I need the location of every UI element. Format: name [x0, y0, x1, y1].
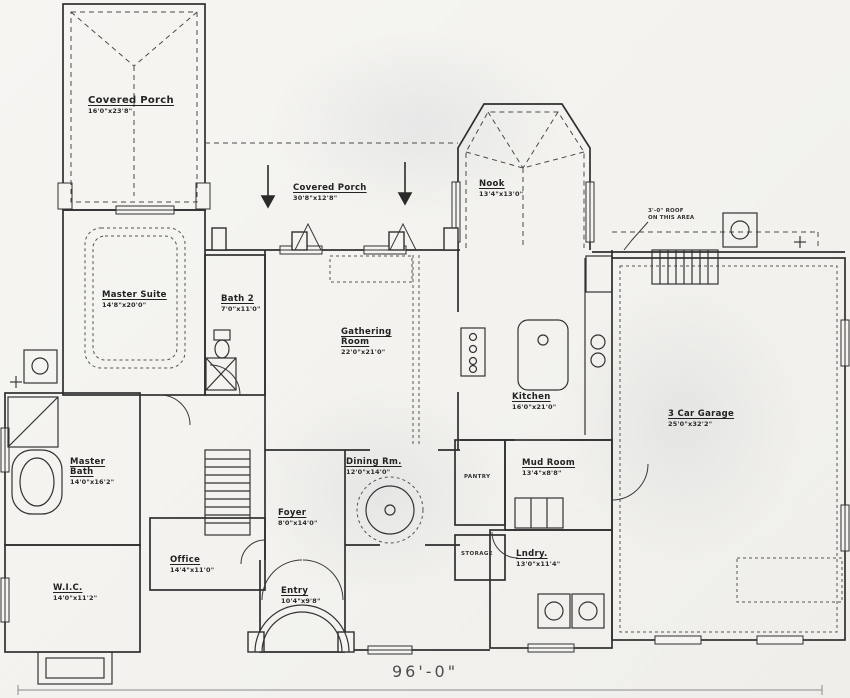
- exterior-steps: [652, 250, 718, 284]
- room-dims: 13'0"x11'4": [516, 561, 560, 568]
- room-dims: 30'8"x12'8": [293, 195, 367, 202]
- room-dims: 8'0"x14'0": [278, 520, 318, 527]
- room-label-garage: 3 Car Garage 25'0"x32'2": [668, 410, 734, 429]
- room-label-wic: W.I.C. 14'0"x11'2": [53, 584, 97, 603]
- room-name: Covered Porch: [293, 184, 367, 194]
- roof-note: 3'-0" ROOF ON THIS AREA: [648, 208, 694, 222]
- roof-note-line2: ON THIS AREA: [648, 215, 694, 222]
- overall-width-value: 96'-0": [392, 662, 458, 681]
- master-tub: [12, 450, 62, 514]
- room-dims: 14'0"x11'2": [53, 595, 97, 602]
- wic-stoop: [38, 652, 112, 684]
- room-name: Nook: [479, 180, 523, 190]
- room-dims: 13'4"x8'8": [522, 470, 575, 477]
- room-name: Gathering Room: [341, 328, 407, 348]
- room-name: Covered Porch: [88, 95, 174, 107]
- room-name: Kitchen: [512, 393, 556, 403]
- room-dims: 22'0"x21'0": [341, 349, 407, 356]
- room-dims: 7'0"x11'0": [221, 306, 261, 313]
- room-dims: 25'0"x32'2": [668, 421, 734, 428]
- room-label-nook: Nook 13'4"x13'0": [479, 180, 523, 199]
- room-name: 3 Car Garage: [668, 410, 734, 420]
- room-label-bath2: Bath 2 7'0"x11'0": [221, 295, 261, 314]
- room-label-foyer: Foyer 8'0"x14'0": [278, 509, 318, 528]
- room-label-kitchen: Kitchen 16'0"x21'0": [512, 393, 556, 412]
- door-swings: [160, 224, 648, 600]
- kitchen-island: [518, 320, 568, 390]
- cooktop: [461, 328, 485, 376]
- room-name: Entry: [281, 587, 321, 597]
- side-chimney-icon: [24, 350, 57, 383]
- bath2-toilet: [214, 330, 230, 358]
- room-label-laundry: Lndry. 13'0"x11'4": [516, 550, 560, 569]
- room-name: Mud Room: [522, 459, 575, 469]
- room-dims: 14'0"x16'2": [70, 479, 114, 486]
- room-label-mud-room: Mud Room 13'4"x8'8": [522, 459, 575, 478]
- room-name: Master Suite: [102, 291, 167, 301]
- room-name: W.I.C.: [53, 584, 97, 594]
- room-dims: 16'0"x23'8": [88, 108, 174, 115]
- room-name: STORAGE: [461, 551, 493, 557]
- room-label-pantry: PANTRY: [464, 474, 490, 480]
- room-dims: 10'4"x9'8": [281, 598, 321, 605]
- room-dims: 13'4"x13'0": [479, 191, 523, 198]
- mudroom-bench: [515, 498, 563, 528]
- floorplan-sheet: Covered Porch 16'0"x23'8" Covered Porch …: [0, 0, 850, 698]
- room-dims: 14'4"x11'0": [170, 567, 214, 574]
- room-dims: 14'8"x20'0": [102, 302, 167, 309]
- room-name: Bath 2: [221, 295, 261, 305]
- dining-table: [366, 486, 414, 534]
- roof-dashed-lines: [71, 12, 818, 250]
- master-shower: [8, 397, 58, 447]
- room-label-entry: Entry 10'4"x9'8": [281, 587, 321, 606]
- room-name: Dining Rm.: [346, 458, 402, 468]
- room-label-covered-porch-center: Covered Porch 30'8"x12'8": [293, 184, 367, 203]
- kitchen-counter: [585, 256, 612, 435]
- room-label-master-bath: Master Bath 14'0"x16'2": [70, 458, 114, 487]
- entry-porch-arc: [255, 605, 349, 652]
- room-label-gathering-room: Gathering Room 22'0"x21'0": [341, 328, 407, 357]
- interior-stairs: [205, 450, 250, 535]
- overall-dimension-line: [18, 685, 822, 695]
- roof-note-leader: [624, 222, 648, 250]
- room-dims: 12'0"x14'0": [346, 469, 402, 476]
- room-name: PANTRY: [464, 474, 490, 480]
- room-label-covered-porch-left: Covered Porch 16'0"x23'8": [88, 95, 174, 115]
- room-label-dining: Dining Rm. 12'0"x14'0": [346, 458, 402, 477]
- washer-dryer: [538, 594, 604, 628]
- room-dims: 16'0"x21'0": [512, 404, 556, 411]
- overall-width-dimension: 96'-0": [392, 663, 458, 681]
- room-name: Lndry.: [516, 550, 560, 560]
- porch-columns: [212, 228, 458, 652]
- room-name: Foyer: [278, 509, 318, 519]
- room-name: Office: [170, 556, 214, 566]
- fixtures: [8, 213, 757, 684]
- chimney-icon: [723, 213, 757, 247]
- roof-note-line1: 3'-0" ROOF: [648, 208, 694, 215]
- room-label-storage: STORAGE: [461, 551, 493, 557]
- room-label-master-suite: Master Suite 14'8"x20'0": [102, 291, 167, 310]
- room-name: Master Bath: [70, 458, 114, 478]
- room-label-office: Office 14'4"x11'0": [170, 556, 214, 575]
